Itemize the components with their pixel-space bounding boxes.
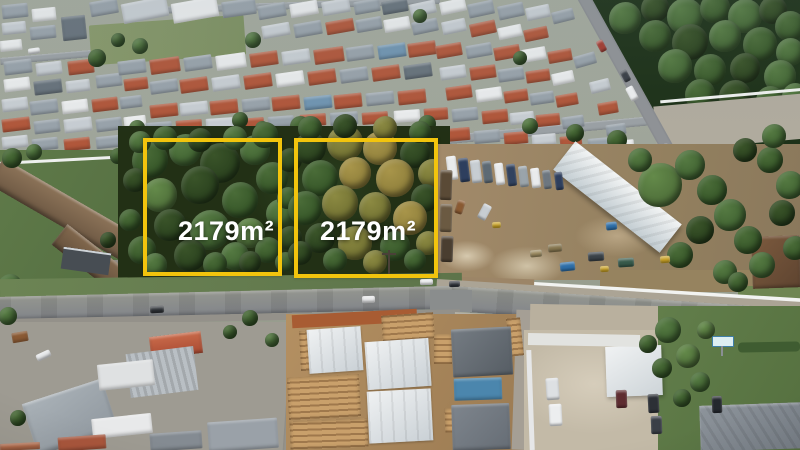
school-driveway xyxy=(100,260,146,298)
plot-vegetation-base xyxy=(118,126,450,286)
red-roof-house xyxy=(149,331,203,359)
street-sign xyxy=(712,336,734,347)
aerial-photo: 2179m² 2179m² xyxy=(0,0,800,450)
commercial-block-base xyxy=(0,322,320,450)
lawn xyxy=(658,306,800,450)
gray-roof-house xyxy=(699,402,800,450)
school-annex-roof xyxy=(61,247,112,275)
metal-roof-building xyxy=(126,346,199,398)
hedge xyxy=(738,341,800,352)
school-roof-wing-2 xyxy=(52,224,139,300)
plot-label-left: 2179m² xyxy=(178,216,274,247)
yard-fence xyxy=(437,276,800,302)
roadside-strip xyxy=(436,279,800,315)
construction-wall xyxy=(292,309,418,329)
utility-pole xyxy=(388,250,390,278)
plot-label-right: 2179m² xyxy=(320,216,416,247)
utility-pole-crossarm xyxy=(382,253,396,255)
brown-roof-house xyxy=(751,235,800,289)
carport-roof xyxy=(605,345,663,397)
parking-ground-upper xyxy=(530,304,663,338)
parking-ground xyxy=(524,330,664,450)
side-road-lower xyxy=(656,143,701,264)
road-segment-right xyxy=(450,286,800,334)
plot-outline-left xyxy=(143,138,282,276)
brown-house-lawn xyxy=(738,286,800,310)
sidewalk-left xyxy=(0,309,460,326)
plot-outline-right xyxy=(294,138,438,278)
street xyxy=(150,0,440,14)
street xyxy=(0,42,182,65)
field xyxy=(89,15,246,66)
yard-ground-right xyxy=(600,270,800,292)
road-segment-left xyxy=(0,286,460,320)
pavement-strip xyxy=(512,310,543,450)
sidewalk-right xyxy=(454,312,800,343)
street xyxy=(400,117,648,149)
school-lawn xyxy=(0,150,150,300)
hip-roof-building xyxy=(22,378,119,450)
construction-ground xyxy=(286,314,528,450)
yard-gate-driveway xyxy=(452,277,535,298)
school-roof-wing-1 xyxy=(0,158,142,264)
curved-street xyxy=(282,316,308,450)
boundary-fence xyxy=(0,154,148,165)
grass-verge xyxy=(0,273,462,302)
street xyxy=(0,153,140,171)
sign-pole xyxy=(721,346,723,356)
yard-ground xyxy=(437,144,800,280)
road-junction xyxy=(430,290,472,312)
